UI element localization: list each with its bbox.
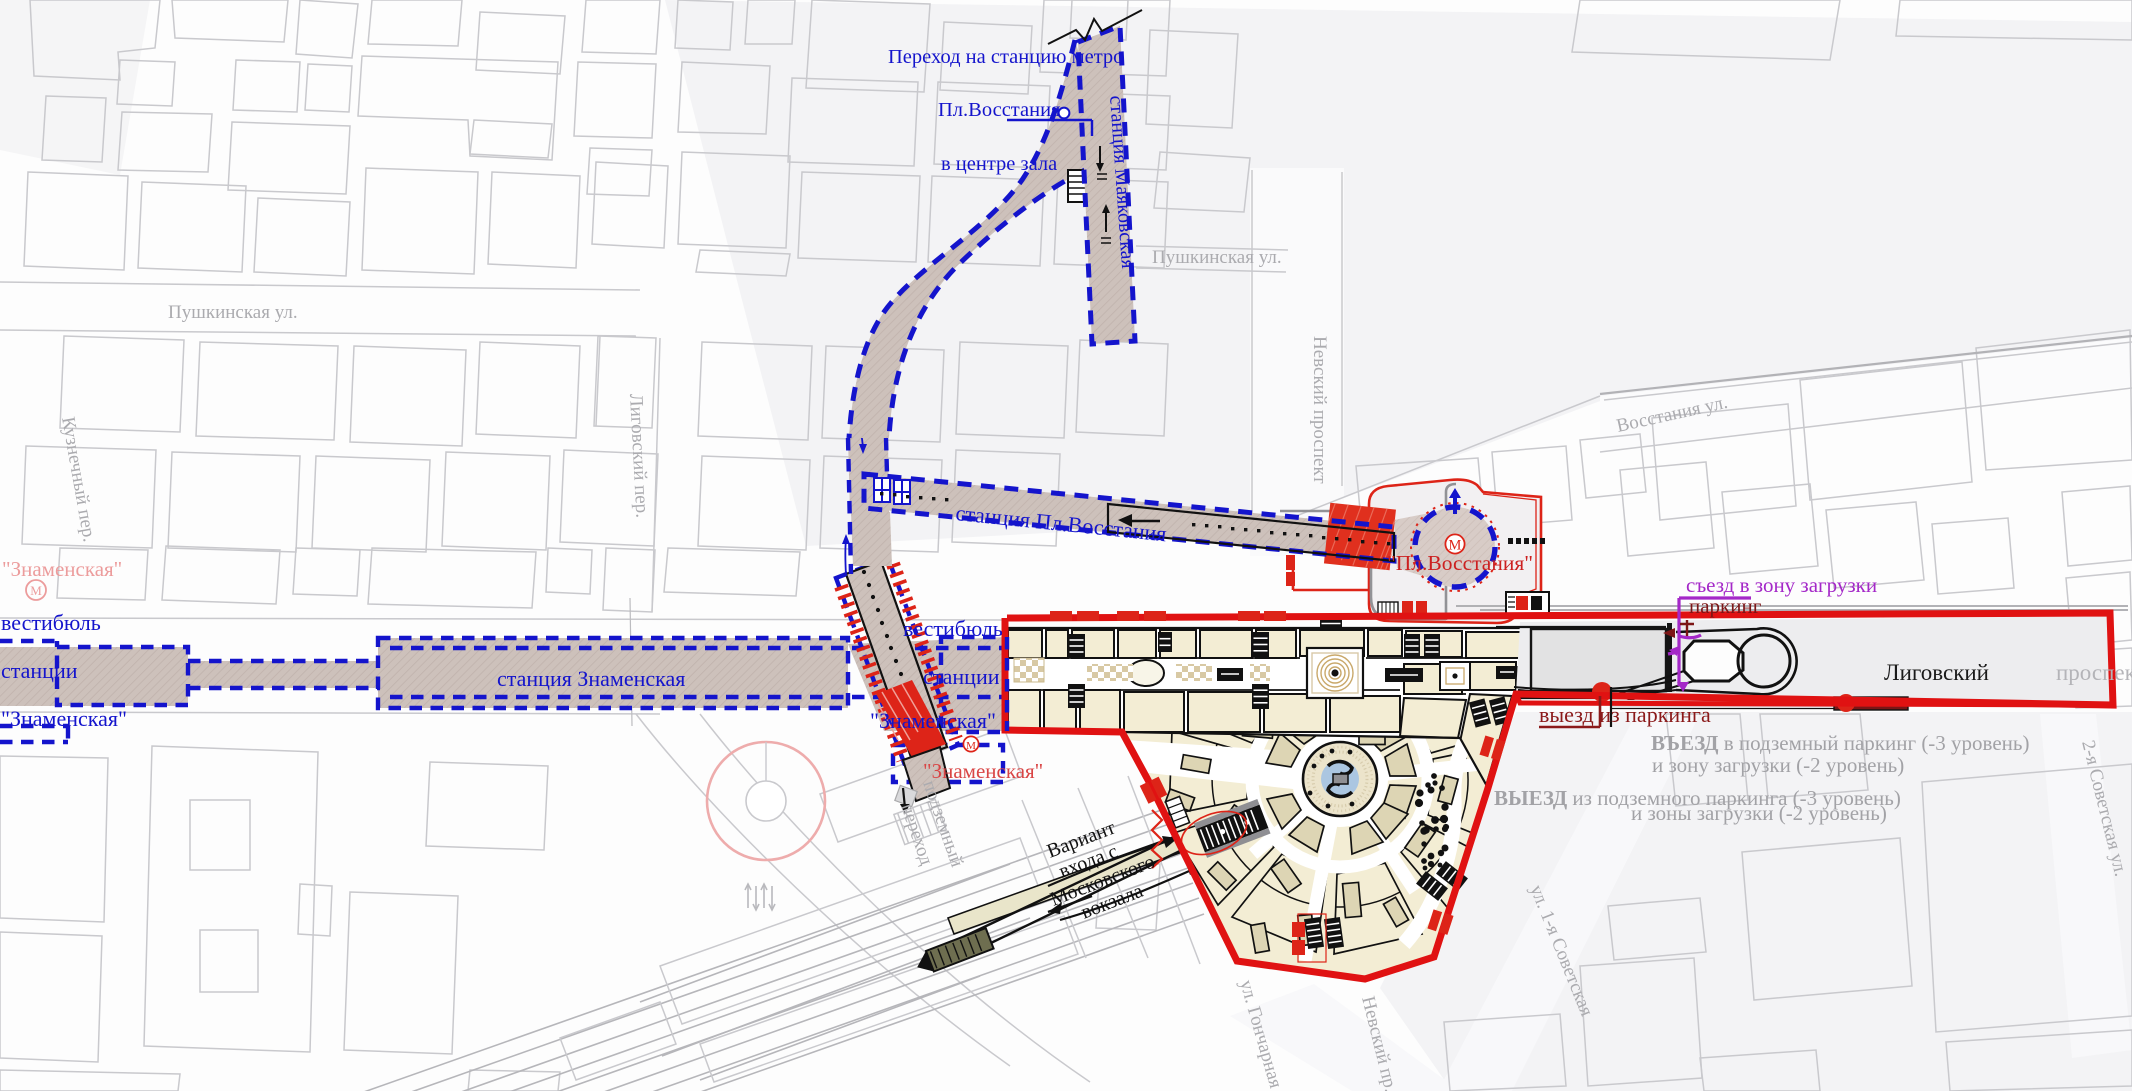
svg-text:"Знаменская": "Знаменская" [1, 706, 127, 731]
svg-text:ВЪЕЗД в подземный паркинг (-: ВЪЕЗД в подземный паркинг (-3 уровень) [1651, 731, 2029, 755]
svg-text:и зону загрузки (-2 уровень): и зону загрузки (-2 уровень) [1652, 753, 1904, 777]
svg-text:паркинг: паркинг [1689, 594, 1762, 618]
svg-text:и зоны загрузки (-2 уровень): и зоны загрузки (-2 уровень) [1631, 801, 1887, 825]
svg-text:"Знаменская": "Знаменская" [870, 708, 996, 733]
svg-text:Пл.Восстания: Пл.Восстания [938, 99, 1061, 121]
svg-text:станции: станции [923, 664, 1000, 689]
svg-text:Пушкинская ул.: Пушкинская ул. [1152, 247, 1282, 268]
svg-text:Пушкинская ул.: Пушкинская ул. [168, 302, 298, 323]
svg-text:"Пл.Восстания": "Пл.Восстания" [1387, 551, 1533, 575]
svg-text:Переход на станцию метро: Переход на станцию метро [888, 46, 1123, 68]
svg-text:проспект: проспект [2056, 660, 2132, 685]
svg-text:М: М [30, 583, 42, 598]
svg-text:вестибюль: вестибюль [903, 616, 1003, 641]
svg-text:станции: станции [1, 658, 78, 683]
svg-text:вестибюль: вестибюль [1, 610, 101, 635]
svg-text:в центре зала: в центре зала [941, 153, 1057, 175]
svg-text:М: М [966, 740, 976, 752]
svg-text:Лиговский: Лиговский [1884, 660, 1989, 685]
svg-text:станция Знаменская: станция Знаменская [497, 666, 685, 691]
svg-text:выезд из паркинга: выезд из паркинга [1539, 702, 1711, 727]
svg-text:Невский проспект: Невский проспект [1309, 336, 1330, 484]
svg-text:"Знаменская": "Знаменская" [923, 759, 1043, 783]
svg-text:"Знаменская": "Знаменская" [2, 557, 122, 581]
